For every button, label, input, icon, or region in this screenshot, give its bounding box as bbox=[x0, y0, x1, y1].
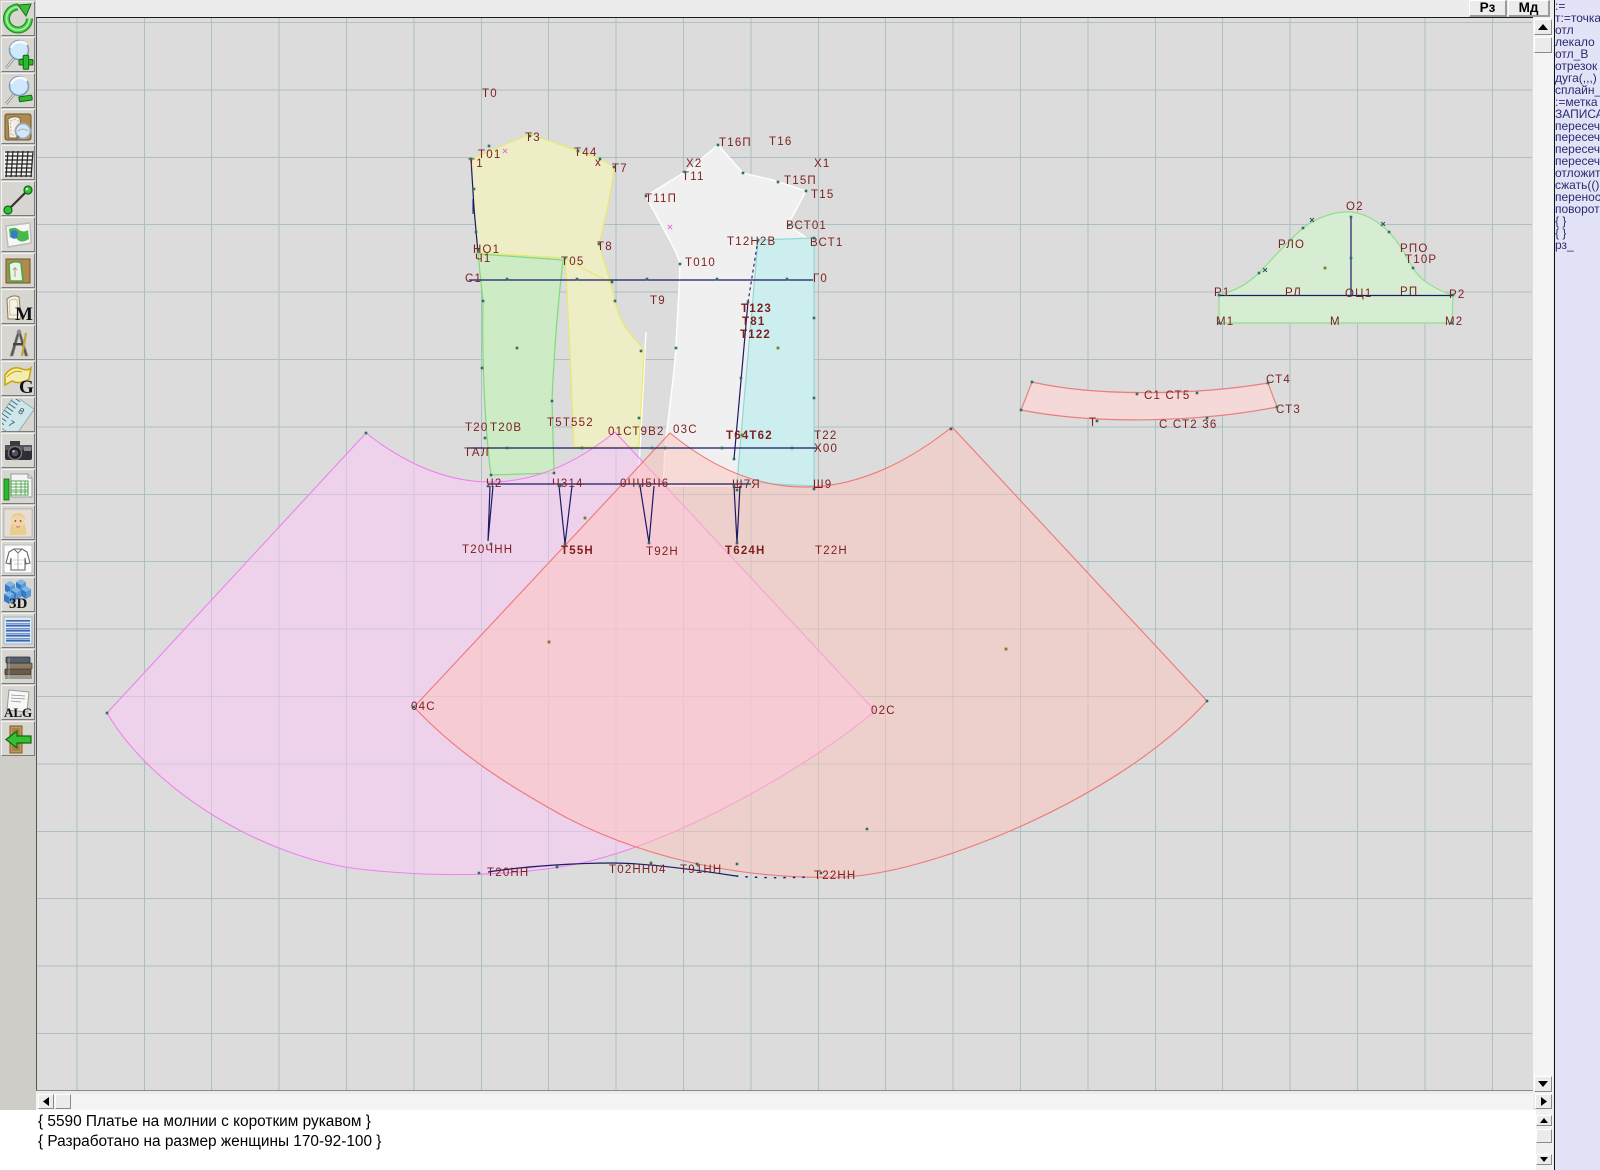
svg-text:РЛО: РЛО bbox=[1278, 239, 1305, 251]
svg-text:Ш9: Ш9 bbox=[813, 479, 832, 491]
svg-text:Т9: Т9 bbox=[650, 295, 666, 307]
svg-text:Г0: Г0 bbox=[813, 273, 828, 285]
svg-text:Т122: Т122 bbox=[740, 329, 771, 341]
svg-text:Т55Н: Т55Н bbox=[561, 545, 594, 557]
svg-text:Т010: Т010 bbox=[685, 257, 716, 269]
svg-text:С СТ2 36: С СТ2 36 bbox=[1159, 419, 1217, 431]
svg-text:Ч314: Ч314 bbox=[552, 478, 584, 490]
svg-text:Т10Р: Т10Р bbox=[1405, 254, 1437, 266]
svg-text:О2: О2 bbox=[1346, 201, 1364, 213]
svg-text:М2: М2 bbox=[1445, 316, 1463, 328]
svg-text:03С: 03С bbox=[673, 424, 698, 436]
svg-text:Т15: Т15 bbox=[811, 189, 834, 201]
svg-text:ТАЛ: ТАЛ bbox=[464, 447, 490, 459]
svg-text:Х00: Х00 bbox=[814, 443, 838, 455]
svg-text:3D: 3D bbox=[9, 596, 28, 611]
svg-text:Т3: Т3 bbox=[525, 132, 541, 144]
svg-text:Р2: Р2 bbox=[1449, 289, 1465, 301]
svg-text:ВСТ01: ВСТ01 bbox=[786, 220, 827, 232]
svg-text:Т123: Т123 bbox=[741, 303, 772, 315]
svg-text:ALG: ALG bbox=[4, 705, 32, 719]
svg-text:Т15П: Т15П bbox=[784, 175, 817, 187]
svg-text:M: M bbox=[15, 304, 33, 323]
svg-text:М: М bbox=[1330, 316, 1341, 328]
svg-text:01СТ9В2: 01СТ9В2 bbox=[608, 426, 665, 438]
svg-text:Т7: Т7 bbox=[612, 163, 628, 175]
svg-text:Т20: Т20 bbox=[465, 422, 488, 434]
svg-text:Т16: Т16 bbox=[769, 136, 792, 148]
svg-text:Т12Н2В: Т12Н2В bbox=[727, 236, 776, 248]
svg-text:Р1: Р1 bbox=[1214, 287, 1230, 299]
svg-text:С1: С1 bbox=[465, 273, 482, 285]
svg-text:Т22: Т22 bbox=[814, 430, 837, 442]
svg-text:Ч1: Ч1 bbox=[475, 253, 491, 265]
svg-text:Т16П: Т16П bbox=[719, 137, 752, 149]
svg-text:02С: 02С bbox=[871, 705, 896, 717]
svg-text:Т20В: Т20В bbox=[490, 422, 522, 434]
svg-text:СТ4: СТ4 bbox=[1266, 374, 1291, 386]
svg-text:РП: РП bbox=[1400, 286, 1418, 298]
svg-text:G: G bbox=[19, 377, 34, 395]
svg-text:Т44: Т44 bbox=[574, 147, 597, 159]
svg-text:Х2: Х2 bbox=[686, 158, 702, 170]
svg-text:0ЧЧ5Ч6: 0ЧЧ5Ч6 bbox=[620, 478, 669, 490]
svg-text:Т: Т bbox=[1089, 417, 1097, 429]
svg-text:Т5Т552: Т5Т552 bbox=[547, 417, 594, 429]
svg-text:РЛ: РЛ bbox=[1285, 287, 1302, 299]
svg-text:СТ3: СТ3 bbox=[1276, 404, 1301, 416]
svg-text:Т0: Т0 bbox=[482, 88, 498, 100]
svg-text:Т92Н: Т92Н bbox=[646, 546, 679, 558]
svg-text:ОЦ1: ОЦ1 bbox=[1345, 288, 1372, 300]
svg-text:Ч2: Ч2 bbox=[486, 478, 502, 490]
svg-text:Т22Н: Т22Н bbox=[815, 545, 848, 557]
svg-text:Т11П: Т11П bbox=[645, 193, 677, 205]
svg-text:Т624Н: Т624Н bbox=[725, 545, 766, 557]
svg-text:Т20НН: Т20НН bbox=[487, 867, 529, 879]
svg-text:Т81: Т81 bbox=[742, 316, 765, 328]
svg-text:Т64Т62: Т64Т62 bbox=[726, 430, 773, 442]
svg-text:Т02НН04: Т02НН04 bbox=[609, 864, 667, 876]
svg-text:С1 СТ5: С1 СТ5 bbox=[1144, 390, 1190, 402]
svg-text:Т20ЧНН: Т20ЧНН bbox=[462, 544, 513, 556]
svg-text:Т91НН: Т91НН bbox=[680, 864, 722, 876]
svg-text:Х1: Х1 bbox=[814, 158, 830, 170]
